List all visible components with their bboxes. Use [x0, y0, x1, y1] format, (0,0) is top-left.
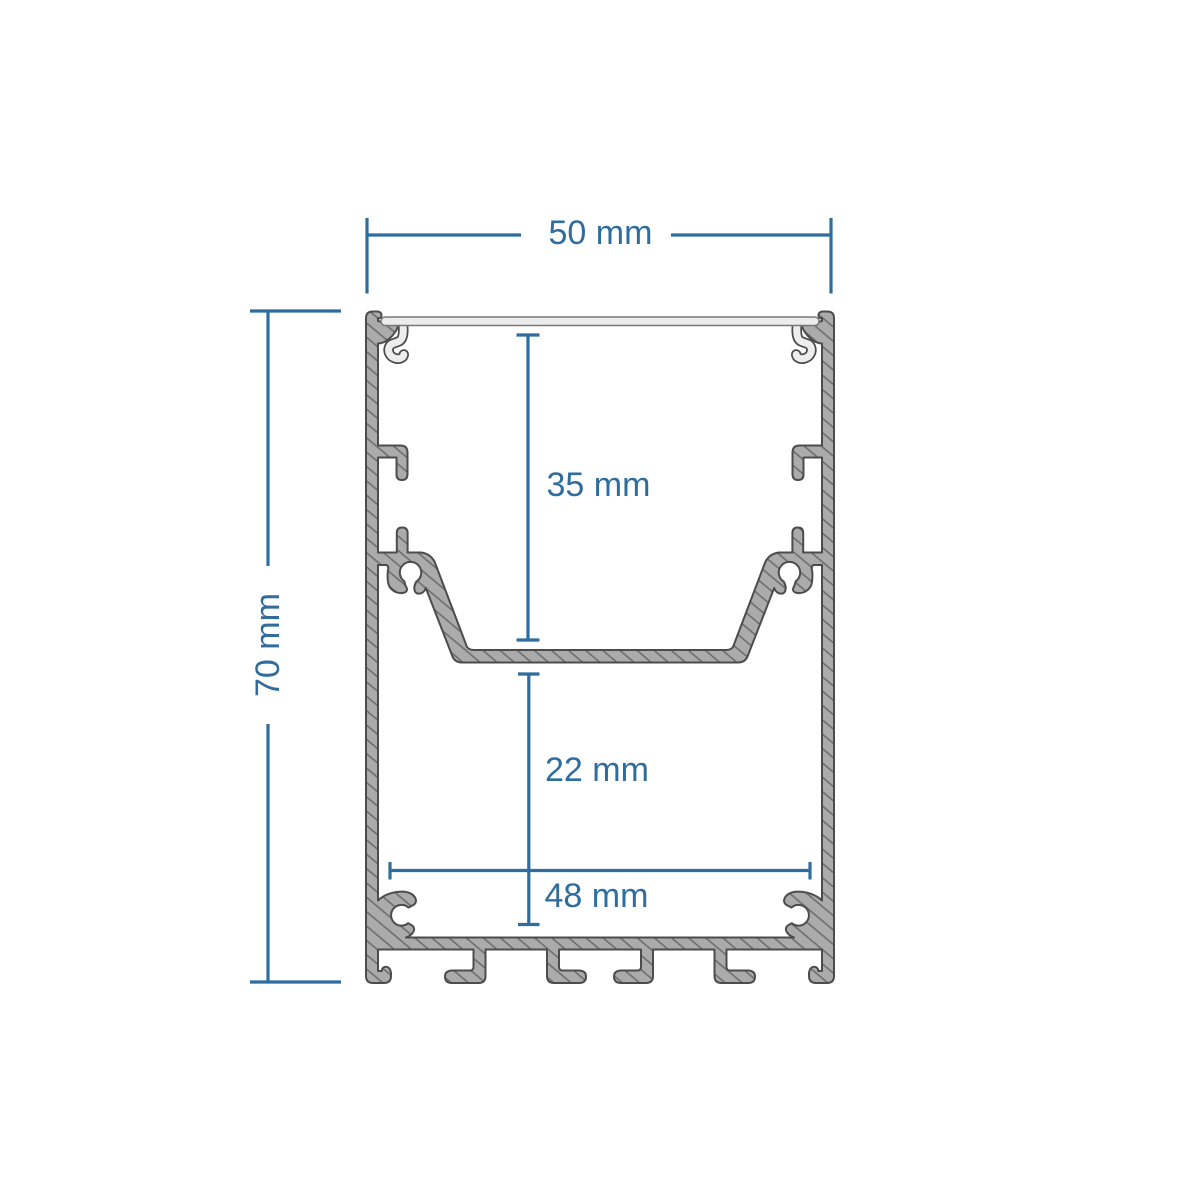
svg-text:48 mm: 48 mm	[545, 877, 649, 915]
svg-text:35 mm: 35 mm	[547, 466, 651, 504]
svg-text:70 mm: 70 mm	[249, 593, 287, 697]
svg-text:50 mm: 50 mm	[549, 214, 653, 252]
svg-text:22 mm: 22 mm	[545, 751, 649, 789]
